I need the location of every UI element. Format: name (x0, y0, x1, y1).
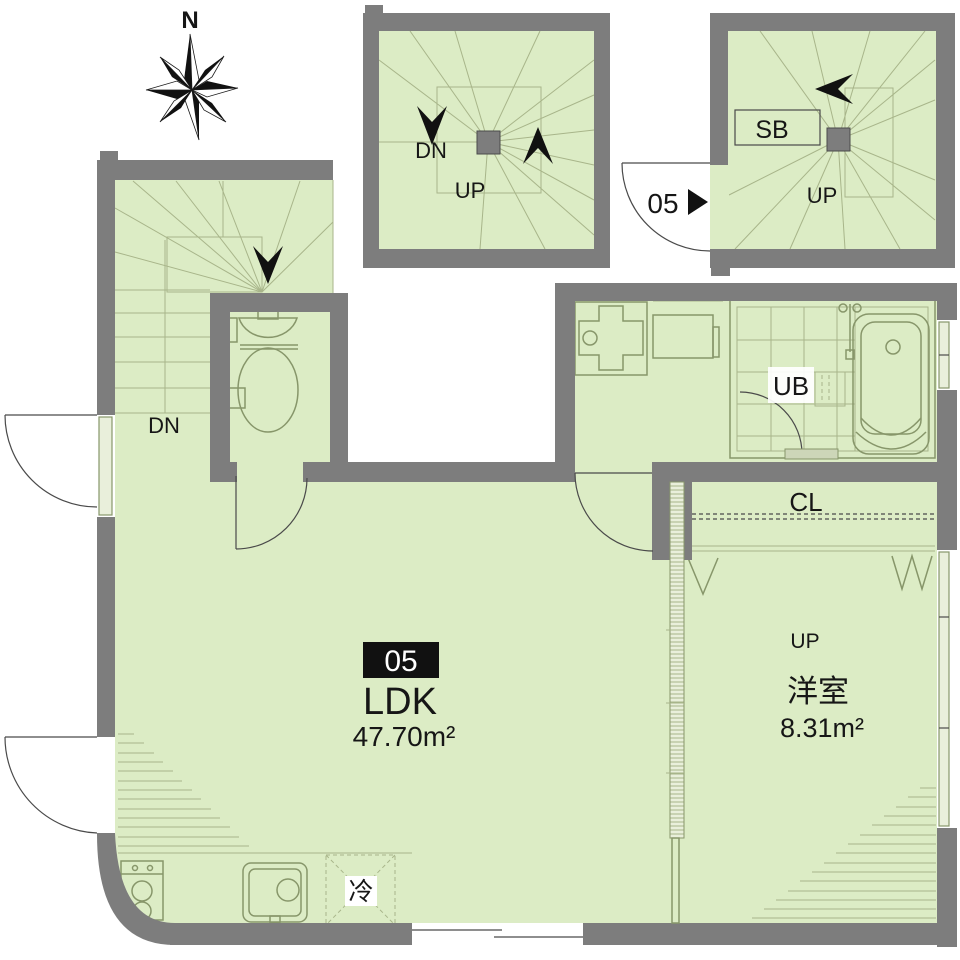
door-swing-arc (5, 415, 97, 507)
bottom-wall-right (583, 923, 957, 945)
upper-stairwell-post (477, 131, 500, 154)
bedroom-label: 洋室 (787, 674, 849, 709)
main-top-wall (555, 283, 957, 301)
bedroom-area: 8.31m² (780, 713, 864, 743)
ldk-top-wall (330, 462, 575, 482)
entry-door-opening (710, 165, 729, 249)
bottom-wall-left (170, 923, 412, 945)
sink (243, 863, 307, 923)
wall-tab (100, 151, 118, 160)
bedroom-window (939, 552, 949, 826)
right-arrow-icon (688, 189, 708, 215)
washer-pan (575, 302, 647, 375)
floor-plan: N (0, 0, 960, 960)
ldk-label: LDK (363, 681, 437, 723)
bottom-window-opening (412, 923, 583, 945)
floor-plan-page: N (0, 0, 960, 960)
closet-top-wall (652, 462, 937, 482)
wall-tab (365, 5, 383, 14)
internal-stair-dn-label: DN (148, 413, 180, 438)
unit-number-text: 05 (384, 645, 417, 678)
toilet-bottom-wall-left (210, 462, 237, 482)
door-swing-arc (5, 737, 97, 833)
entry-stair-up-label: UP (807, 183, 838, 208)
unit-bath-label: UB (773, 371, 809, 401)
sliding-door-track (670, 482, 684, 838)
left-window-sash (99, 417, 112, 515)
wall-tab (711, 268, 730, 276)
bedroom-up-label: UP (790, 630, 819, 653)
left-wall-mid (97, 517, 115, 737)
upper-stair-dn-label: DN (415, 138, 447, 163)
toilet-top-wall (210, 293, 345, 312)
exterior-void (348, 296, 555, 462)
compass-rose-icon (146, 34, 238, 140)
left-wall-upper (97, 180, 115, 415)
upper-stair-up-label: UP (455, 178, 486, 203)
sink-outer (243, 863, 307, 922)
bath-threshold (785, 449, 838, 459)
fridge-label: 冷 (348, 878, 373, 906)
compass-north-label: N (181, 7, 198, 34)
entry-stairwell-post (827, 128, 850, 151)
ldk-area: 47.70m² (353, 721, 456, 752)
shoe-box-label: SB (755, 116, 788, 144)
washroom-left-wall (555, 283, 575, 473)
right-wall-mid (937, 390, 957, 550)
closet-label: CL (789, 487, 822, 517)
unit-door-number: 05 (647, 188, 678, 219)
right-wall-top (937, 301, 957, 320)
toilet-left-wall (210, 312, 230, 462)
stair-top-wall (97, 160, 333, 180)
toilet-right-wall (330, 293, 348, 462)
